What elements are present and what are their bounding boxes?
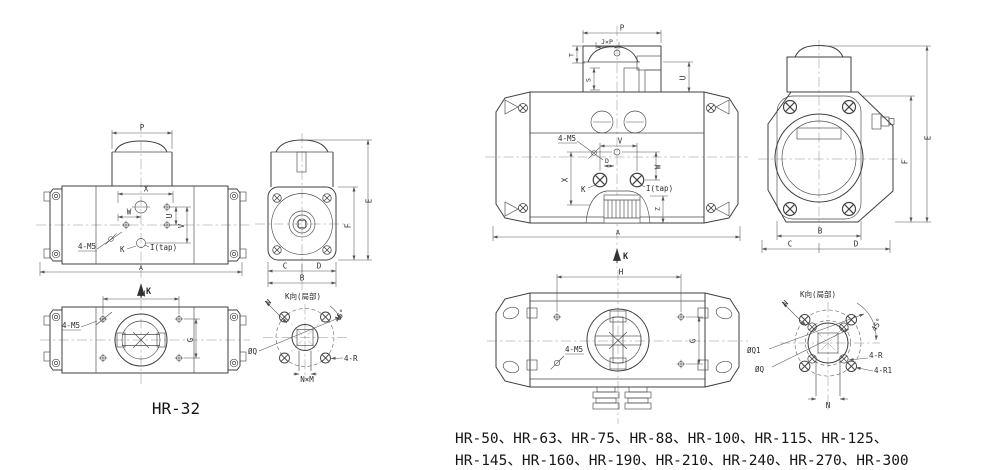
- callout-k: K: [581, 185, 586, 194]
- callout-itap: I(tap): [150, 243, 177, 252]
- model-series-line1: HR-50、HR-63、HR-75、HR-88、HR-100、HR-115、HR…: [455, 431, 888, 447]
- hr32-bottom-view: H G 4-M5: [40, 290, 250, 386]
- dim-label-r1: 4-R1: [874, 366, 892, 375]
- callout-4m5: 4-M5: [565, 345, 583, 354]
- dim-label-c: C: [283, 262, 288, 271]
- dim-label-q1: ØQ1: [747, 346, 761, 355]
- body-octagon: [768, 92, 893, 222]
- section-hatch-b: [645, 70, 661, 92]
- dim-label-b: B: [818, 227, 823, 236]
- dim-label-f: F: [344, 223, 353, 228]
- section-hatch-a: [637, 56, 661, 70]
- callout-4m5: 4-M5: [62, 321, 80, 330]
- dim-label-r: 4-R: [869, 351, 883, 360]
- dim-label-p: P: [620, 24, 625, 33]
- callout-4m5: 4-M5: [558, 134, 576, 143]
- dim-label-p: P: [140, 123, 145, 132]
- callout-k: K: [120, 245, 125, 254]
- dim-label-a: A: [139, 264, 143, 272]
- dim-label-v: V: [177, 223, 186, 228]
- indicator-slot: [297, 152, 306, 172]
- dim-label-s: S: [585, 78, 593, 82]
- section-hatch-c: [624, 68, 639, 92]
- dim-label-w: W: [127, 208, 132, 217]
- actuator-dimension-drawing: P X W U V 4-M5 K I(tap) A K: [0, 0, 1000, 470]
- dim-label-u: U: [679, 76, 688, 81]
- hr32-side-view: E F C D B: [255, 133, 374, 290]
- dim-label-u: U: [165, 214, 174, 219]
- hr-large-bottom-view: H G 4-M5: [487, 268, 748, 425]
- callout-itap: I(tap): [646, 184, 673, 193]
- callout-4m5: 4-M5: [78, 242, 96, 251]
- dim-label-f: F: [901, 159, 910, 164]
- dim-label-n2: N: [826, 401, 831, 410]
- hr32-flange-detail: K向(局部) N×M N ØQ 45° 4-R: [248, 291, 358, 384]
- hr32-front-view: P X W U V 4-M5 K I(tap) A K: [36, 122, 252, 298]
- top-cap-section: [583, 46, 661, 92]
- dim-label-d: D: [317, 262, 322, 271]
- dim-label-x: X: [144, 185, 149, 194]
- hr-large-front-view: P J×P T S U V 4-M5 D K I(tap) X W: [485, 24, 748, 269]
- hr-large-side-view: E F B C D: [758, 40, 933, 253]
- dim-label-w: W: [654, 164, 663, 169]
- dim-label-d: D: [854, 240, 859, 249]
- dim-label-x: X: [561, 177, 570, 182]
- model-series-line2: HR-145、HR-160、HR-190、HR-210、HR-240、HR-27…: [455, 453, 909, 469]
- dim-label-b: B: [300, 274, 305, 283]
- dim-label-c: C: [788, 240, 793, 249]
- dim-label-t: T: [568, 53, 576, 57]
- dim-label-q: ØQ: [248, 347, 258, 356]
- dim-label-n: N: [263, 297, 273, 307]
- view-direction-k: K: [623, 252, 629, 262]
- dim-label-z: Z: [654, 207, 662, 211]
- drawing-canvas: P X W U V 4-M5 K I(tap) A K: [0, 0, 1000, 470]
- dim-label-e: E: [924, 135, 933, 140]
- dim-label-g: G: [186, 337, 195, 342]
- dim-label-g: G: [689, 338, 698, 343]
- detail-view-title: K向(局部): [800, 289, 836, 299]
- dim-label-q: ØQ: [755, 365, 765, 374]
- air-fitting: [872, 114, 881, 129]
- dim-label-v: V: [618, 137, 623, 146]
- dim-label-h: H: [619, 268, 624, 277]
- detail-view-title: K向(局部): [285, 291, 321, 301]
- model-caption-left: HR-32: [152, 399, 200, 418]
- view-direction-k: K: [146, 287, 152, 297]
- dim-label-jxp: J×P: [601, 38, 613, 46]
- spline-shaft: [604, 195, 640, 223]
- air-port-fittings: [593, 387, 651, 409]
- dim-label-a: A: [616, 229, 620, 237]
- dim-label-e: E: [365, 198, 374, 203]
- dim-label-d: D: [605, 157, 609, 165]
- dim-label-nxm: N×M: [300, 375, 314, 384]
- dim-label-r: 4-R: [344, 354, 358, 363]
- hr-large-flange-detail: K向(局部) N N ØQ1 ØQ 45° 4-R 4-R1: [747, 289, 892, 412]
- dim-label-n: N: [780, 298, 790, 308]
- dim-label-h: H: [141, 290, 146, 299]
